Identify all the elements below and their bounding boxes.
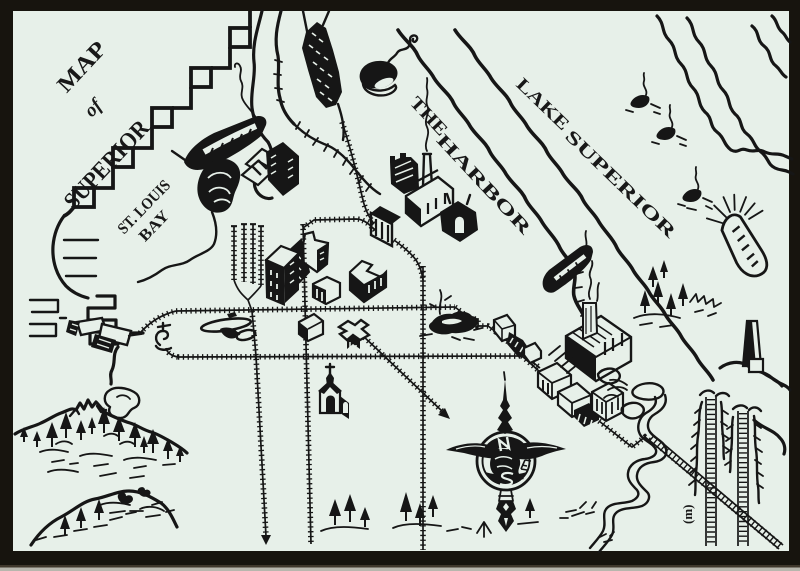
svg-text:(m): (m) [680, 505, 695, 525]
